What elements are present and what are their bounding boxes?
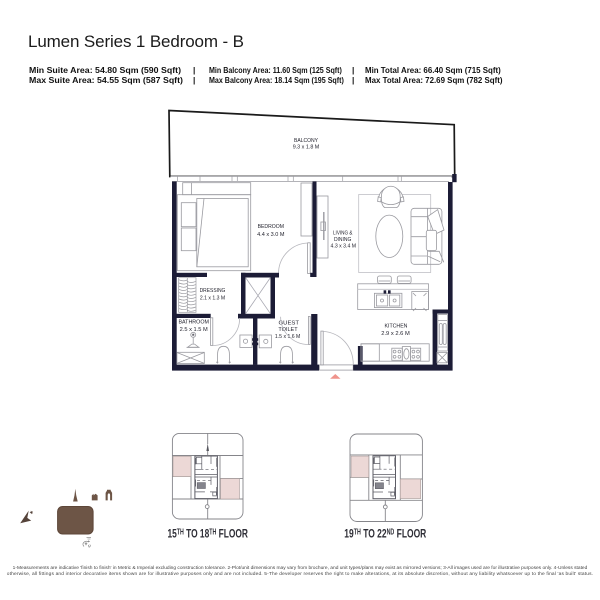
svg-text:DRESSING: DRESSING bbox=[200, 288, 226, 294]
svg-text:4.4 x 3.0 M: 4.4 x 3.0 M bbox=[257, 232, 285, 238]
svg-text:9.3 x 1.8 M: 9.3 x 1.8 M bbox=[293, 145, 320, 151]
svg-text:2.9 x 2.6 M: 2.9 x 2.6 M bbox=[381, 331, 410, 337]
svg-text:TOILET: TOILET bbox=[278, 327, 298, 333]
svg-text:BEDROOM: BEDROOM bbox=[258, 224, 285, 230]
svg-text:LIVING &: LIVING & bbox=[333, 231, 353, 237]
svg-text:2.5 x 1.5 M: 2.5 x 1.5 M bbox=[180, 327, 209, 333]
svg-text:KITCHEN: KITCHEN bbox=[385, 323, 408, 329]
svg-text:2.1 x 1.3 M: 2.1 x 1.3 M bbox=[200, 296, 226, 302]
svg-text:4.3 x 3.4 M: 4.3 x 3.4 M bbox=[331, 244, 357, 250]
svg-text:DINING: DINING bbox=[334, 237, 352, 243]
svg-text:19TH TO 22ND FLOOR: 19TH TO 22ND FLOOR bbox=[344, 527, 426, 541]
svg-text:BATHROOM: BATHROOM bbox=[178, 320, 209, 326]
svg-text:15TH TO 18TH FLOOR: 15TH TO 18TH FLOOR bbox=[167, 527, 248, 541]
svg-text:BALCONY: BALCONY bbox=[294, 138, 318, 144]
